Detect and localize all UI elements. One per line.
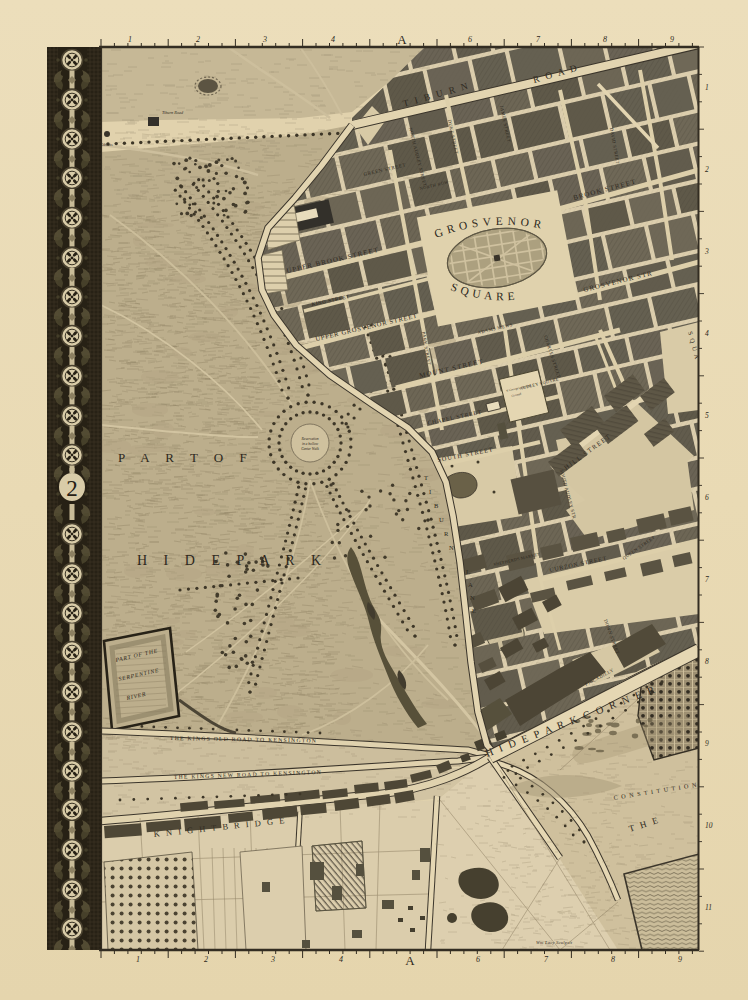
- svg-text:B: B: [434, 502, 439, 509]
- svg-text:A: A: [468, 581, 473, 588]
- svg-text:1: 1: [136, 955, 140, 964]
- svg-text:3: 3: [270, 955, 275, 964]
- svg-text:E: E: [472, 607, 476, 614]
- svg-text:5: 5: [705, 411, 709, 420]
- svg-text:T: T: [424, 474, 428, 481]
- svg-text:2: 2: [196, 35, 200, 44]
- svg-text:4: 4: [339, 955, 343, 964]
- svg-text:in a hollow: in a hollow: [302, 442, 319, 446]
- svg-text:2: 2: [705, 165, 709, 174]
- svg-text:N: N: [449, 544, 454, 551]
- svg-text:6: 6: [468, 35, 472, 44]
- svg-text:8: 8: [611, 955, 615, 964]
- svg-text:8: 8: [705, 657, 709, 666]
- svg-text:3: 3: [704, 247, 709, 256]
- svg-text:Wm Lacy Sculpsit: Wm Lacy Sculpsit: [536, 940, 573, 945]
- svg-text:H I D E P A R K: H I D E P A R K: [137, 553, 328, 568]
- svg-text:2: 2: [204, 955, 208, 964]
- svg-text:R: R: [444, 530, 449, 537]
- svg-text:L: L: [466, 568, 470, 575]
- svg-text:U: U: [439, 516, 444, 523]
- svg-text:9: 9: [705, 739, 709, 748]
- svg-text:6: 6: [705, 493, 709, 502]
- svg-text:4: 4: [705, 329, 709, 338]
- svg-text:A: A: [405, 953, 415, 968]
- svg-text:11: 11: [705, 903, 712, 912]
- svg-text:2: 2: [66, 476, 78, 501]
- svg-text:1: 1: [128, 35, 132, 44]
- svg-text:10: 10: [705, 821, 713, 830]
- svg-text:N: N: [470, 594, 475, 601]
- svg-text:I: I: [429, 488, 431, 495]
- svg-text:4: 4: [331, 35, 335, 44]
- svg-text:P A R T O F: P A R T O F: [118, 450, 253, 465]
- svg-text:A: A: [397, 32, 407, 47]
- svg-text:9: 9: [670, 35, 674, 44]
- svg-text:7: 7: [705, 575, 709, 584]
- svg-text:8: 8: [603, 35, 607, 44]
- svg-text:9: 9: [678, 955, 682, 964]
- svg-text:1: 1: [705, 83, 709, 92]
- svg-text:6: 6: [476, 955, 480, 964]
- svg-text:Tiburn Road: Tiburn Road: [162, 110, 184, 115]
- svg-text:Center Walk: Center Walk: [301, 447, 319, 451]
- svg-text:3: 3: [262, 35, 267, 44]
- svg-text:Reservation: Reservation: [300, 437, 318, 441]
